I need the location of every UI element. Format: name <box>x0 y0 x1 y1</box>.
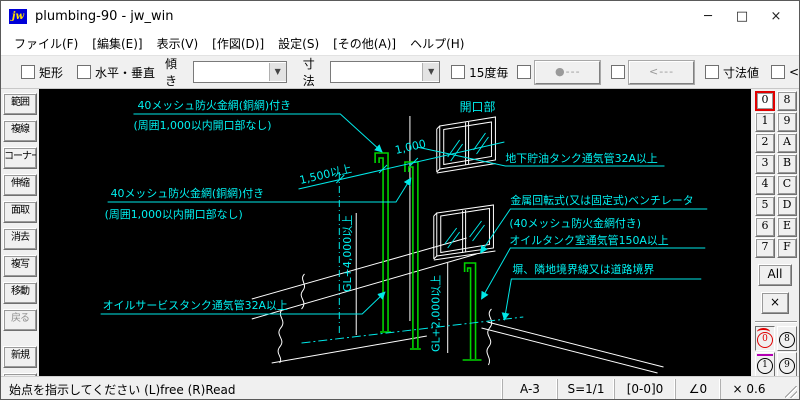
open-file-button[interactable]: 開く <box>3 373 37 376</box>
vent-pipe-right <box>463 263 482 360</box>
break-lines <box>278 274 492 365</box>
pen-button-4[interactable]: 4 <box>755 175 775 195</box>
pen-button-5[interactable]: 5 <box>755 196 775 216</box>
main-area: 範囲 複線 コーナー 伸縮 面取 消去 複写 移動 戻る 新規 開く 上書 <box>1 89 799 376</box>
checkbox-icon <box>77 65 91 79</box>
label-ventilator-line2: (40メッシュ防火金網付き) <box>509 216 641 230</box>
lt-checkbox-label: < <box>789 65 799 79</box>
pen-button-8[interactable]: 8 <box>777 91 797 111</box>
label-boundary: 塀、隣地境界線又は道路境界 <box>512 262 654 276</box>
chevron-down-icon[interactable]: ▼ <box>269 63 286 81</box>
dim-value-label: 寸法値 <box>723 64 759 81</box>
all-layers-button[interactable]: All <box>758 264 792 286</box>
right-tool-rail: 08 19 2A 3B 4C 5D 6E 7F All × 0 8 1 9 2 … <box>751 89 799 376</box>
rect-checkbox[interactable]: 矩形 <box>21 64 63 81</box>
hv-checkbox-label: 水平・垂直 <box>95 64 155 81</box>
menu-edit[interactable]: [編集(E)] <box>85 33 149 54</box>
status-bar: 始点を指示してください (L)free (R)Read A-3 S=1/1 [0… <box>1 376 799 400</box>
label-mesh2-line1: 40メッシュ防火金網(銅網)付き <box>111 186 265 200</box>
deg15-checkbox-label: 15度毎 <box>469 64 508 81</box>
angle-indicator[interactable]: ∠0 <box>675 379 720 399</box>
vent-pipe-center <box>405 162 421 349</box>
menu-file[interactable]: ファイル(F) <box>7 33 85 54</box>
app-icon: jw <box>9 9 27 24</box>
rail-spacer <box>1 336 39 346</box>
label-oil-tank-room: オイルタンク室通気管150A以上 <box>509 233 668 247</box>
pen-button-1[interactable]: 1 <box>755 112 775 132</box>
checkbox-icon <box>21 65 35 79</box>
rail-divider <box>755 321 797 322</box>
layer-group-button-9[interactable]: 9 <box>777 352 797 376</box>
window-opening-upper <box>437 117 496 173</box>
checkbox-icon <box>451 65 465 79</box>
deselect-button[interactable]: × <box>761 292 789 314</box>
range-select-button[interactable]: 範囲 <box>3 93 37 115</box>
menu-bar: ファイル(F) [編集(E)] 表示(V) [作図(D)] 設定(S) [その他… <box>1 31 799 56</box>
left-tool-rail: 範囲 複線 コーナー 伸縮 面取 消去 複写 移動 戻る 新規 開く 上書 <box>1 89 39 376</box>
pen-button-9[interactable]: 9 <box>777 112 797 132</box>
dimension-dropdown[interactable]: ▼ <box>330 61 440 83</box>
pen-button-a[interactable]: A <box>777 133 797 153</box>
label-underground-tank: 地下貯油タンク通気管32A以上 <box>505 151 657 165</box>
pen-button-e[interactable]: E <box>777 217 797 237</box>
label-mesh2-line2: (周囲1,000以内開口部なし) <box>105 207 243 221</box>
label-gl-2000: GL+2,000以上 <box>430 275 443 352</box>
label-mesh1-line1: 40メッシュ防火金網(銅網)付き <box>137 98 291 112</box>
arrow-style-checkbox[interactable] <box>611 65 629 79</box>
scale-indicator[interactable]: S=1/1 <box>557 379 614 399</box>
undo-button[interactable]: 戻る <box>3 309 37 331</box>
label-ventilator-line1: 金属回転式(又は固定式)ベンチレータ <box>510 193 693 207</box>
pen-button-0[interactable]: 0 <box>755 91 775 111</box>
maximize-button[interactable]: □ <box>725 9 759 24</box>
checkbox-icon <box>771 65 785 79</box>
dim-value-checkbox[interactable]: 寸法値 <box>705 64 759 81</box>
point-style-button[interactable]: ●--- <box>535 61 600 84</box>
incline-dropdown[interactable]: ▼ <box>193 61 287 83</box>
pen-button-7[interactable]: 7 <box>755 238 775 258</box>
copy-button[interactable]: 複写 <box>3 255 37 277</box>
menu-draw[interactable]: [作図(D)] <box>205 33 271 54</box>
label-dim-1000: 1,000 <box>394 137 427 157</box>
window-title: plumbing-90 - jw_win <box>35 9 691 24</box>
dimension-label: 寸法 <box>303 55 327 89</box>
horizontal-vertical-checkbox[interactable]: 水平・垂直 <box>77 64 155 81</box>
checkbox-icon <box>611 65 625 79</box>
label-oil-service-tank: オイルサービスタンク通気管32A以上 <box>103 298 288 312</box>
pen-button-c[interactable]: C <box>777 175 797 195</box>
current-layer-arc-icon <box>757 328 770 336</box>
incline-label: 傾き <box>165 55 189 89</box>
erase-button[interactable]: 消去 <box>3 228 37 250</box>
chamfer-button[interactable]: 面取 <box>3 201 37 223</box>
pen-button-2[interactable]: 2 <box>755 133 775 153</box>
drawing-canvas[interactable]: 40メッシュ防火金網(銅網)付き (周囲1,000以内開口部なし) 40メッシュ… <box>39 89 751 376</box>
menu-help[interactable]: ヘルプ(H) <box>403 33 471 54</box>
resize-grip[interactable] <box>777 378 799 400</box>
layer-group-button-8[interactable]: 8 <box>777 326 797 351</box>
layer-indicator[interactable]: [0-0]0 <box>614 379 675 399</box>
layer-group-button-1[interactable]: 1 <box>755 352 775 376</box>
checkbox-icon <box>517 65 531 79</box>
menu-settings[interactable]: 設定(S) <box>271 33 326 54</box>
pen-button-b[interactable]: B <box>777 154 797 174</box>
pen-button-f[interactable]: F <box>777 238 797 258</box>
plumbing-drawing: 40メッシュ防火金網(銅網)付き (周囲1,000以内開口部なし) 40メッシュ… <box>39 89 751 376</box>
paper-size-indicator[interactable]: A-3 <box>502 379 557 399</box>
chevron-down-icon[interactable]: ▼ <box>422 63 439 81</box>
minimize-button[interactable]: ─ <box>691 9 725 24</box>
label-gl-4000: GL+4,000以上 <box>341 215 354 292</box>
new-file-button[interactable]: 新規 <box>3 346 37 368</box>
title-bar: jw plumbing-90 - jw_win ─ □ × <box>1 1 799 31</box>
vent-pipe-left <box>375 153 391 332</box>
label-opening: 開口部 <box>460 99 496 114</box>
parallel-line-button[interactable]: 複線 <box>3 120 37 142</box>
menu-other[interactable]: [その他(A)] <box>326 33 403 54</box>
move-button[interactable]: 移動 <box>3 282 37 304</box>
extend-button[interactable]: 伸縮 <box>3 174 37 196</box>
layer-group-button-0[interactable]: 0 <box>755 326 775 351</box>
point-style-checkbox[interactable] <box>517 65 535 79</box>
pen-button-6[interactable]: 6 <box>755 217 775 237</box>
app-window: jw plumbing-90 - jw_win ─ □ × ファイル(F) [編… <box>0 0 800 400</box>
rect-checkbox-label: 矩形 <box>39 64 63 81</box>
checkbox-icon <box>705 65 719 79</box>
layer-content-bar-icon <box>757 354 773 356</box>
window-opening-lower <box>434 205 496 260</box>
pen-button-3[interactable]: 3 <box>755 154 775 174</box>
label-mesh1-line2: (周囲1,000以内開口部なし) <box>133 118 271 132</box>
corner-button[interactable]: コーナー <box>3 147 37 169</box>
close-button[interactable]: × <box>759 9 793 24</box>
lt-checkbox[interactable]: < <box>771 65 799 79</box>
ground-lines <box>252 238 664 373</box>
pen-button-d[interactable]: D <box>777 196 797 216</box>
menu-view[interactable]: 表示(V) <box>150 33 206 54</box>
arrow-style-button[interactable]: <--- <box>629 61 694 84</box>
deg15-checkbox[interactable]: 15度毎 <box>451 64 508 81</box>
options-toolbar: 矩形 水平・垂直 傾き ▼ 寸法 ▼ 15度毎 ●--- <--- 寸法値 <box>1 56 799 89</box>
zoom-indicator[interactable]: × 0.6 <box>720 379 777 399</box>
status-message: 始点を指示してください (L)free (R)Read <box>1 381 502 398</box>
